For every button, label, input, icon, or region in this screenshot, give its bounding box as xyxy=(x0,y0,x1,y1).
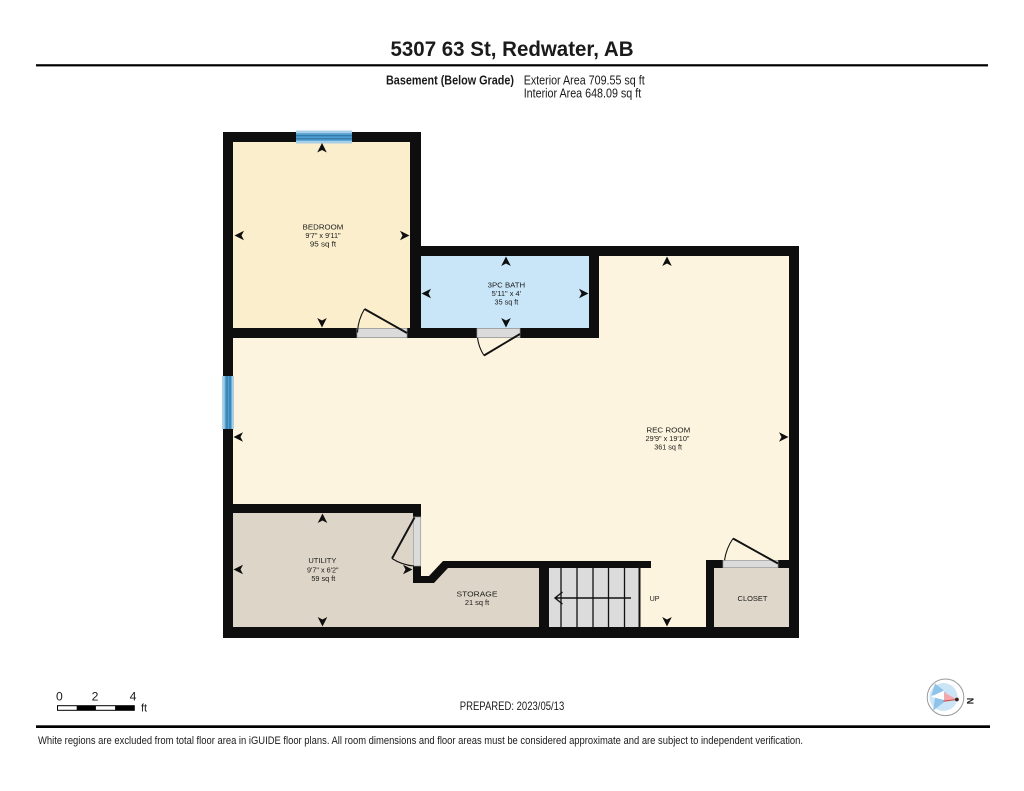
svg-text:361 sq ft: 361 sq ft xyxy=(654,442,682,451)
svg-text:2: 2 xyxy=(92,690,99,704)
svg-text:ft: ft xyxy=(141,703,147,715)
svg-text:White regions are excluded fro: White regions are excluded from total fl… xyxy=(38,735,803,747)
svg-text:N: N xyxy=(965,698,975,705)
svg-text:5307 63 St, Redwater, AB: 5307 63 St, Redwater, AB xyxy=(391,37,634,61)
svg-text:Interior Area 648.09 sq ft: Interior Area 648.09 sq ft xyxy=(524,86,642,100)
svg-text:Basement (Below Grade): Basement (Below Grade) xyxy=(386,73,514,88)
svg-text:4: 4 xyxy=(130,690,137,704)
svg-text:CLOSET: CLOSET xyxy=(738,594,768,603)
svg-text:21 sq ft: 21 sq ft xyxy=(465,598,489,607)
svg-text:95 sq ft: 95 sq ft xyxy=(310,239,336,248)
svg-text:9'7" x 6'2": 9'7" x 6'2" xyxy=(307,565,339,574)
svg-text:0: 0 xyxy=(56,690,63,704)
svg-text:35 sq ft: 35 sq ft xyxy=(495,298,519,307)
svg-text:UP: UP xyxy=(650,594,660,603)
svg-text:UTILITY: UTILITY xyxy=(308,556,336,565)
svg-text:59 sq ft: 59 sq ft xyxy=(311,574,335,583)
svg-text:PREPARED: 2023/05/13: PREPARED: 2023/05/13 xyxy=(460,699,565,713)
